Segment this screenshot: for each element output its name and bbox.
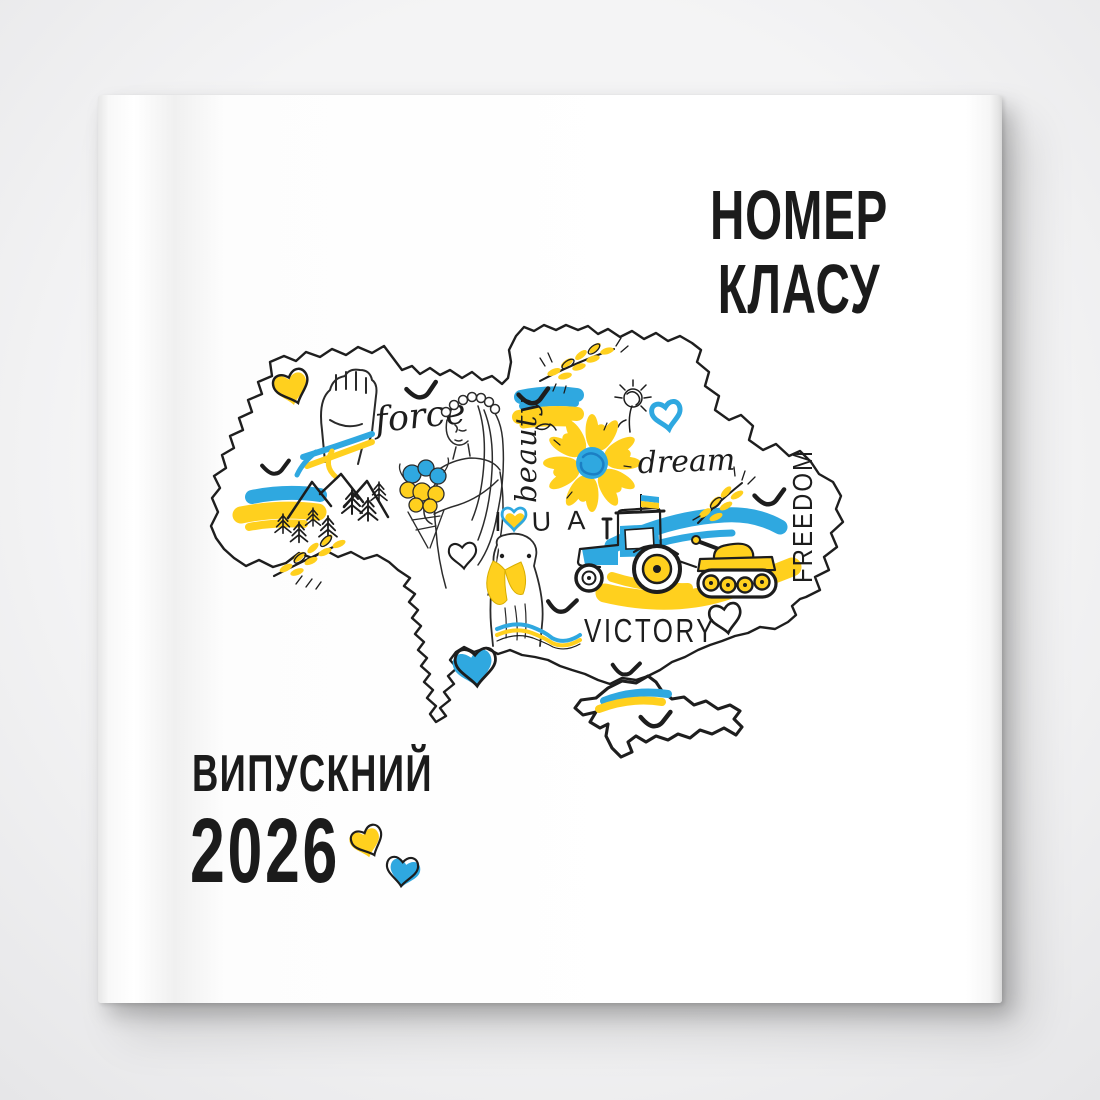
graduation-year: 2026 [190, 805, 340, 897]
freedom-label: FREEDOM [789, 449, 819, 583]
crimea-outline [575, 676, 742, 757]
dream-label: dream [637, 443, 736, 481]
ukraine-doodle-art: force [0, 0, 1100, 1100]
beauty-label: beauty [509, 397, 543, 503]
photo-album-mockup: force [0, 0, 1100, 1100]
class-number-title-line1: НОМЕР [690, 180, 908, 250]
beauty-script: beauty [509, 397, 543, 503]
victory-word: VICTORY [584, 613, 716, 650]
victory-label: VICTORY [584, 613, 716, 650]
class-number-title-line2: КЛАСУ [690, 254, 908, 324]
freedom-vertical: FREEDOM [789, 449, 819, 583]
graduation-label: ВИПУСКНИЙ [192, 748, 433, 800]
ua-label: U A [531, 505, 591, 537]
dream-script: dream [637, 443, 736, 481]
i-label: I [494, 506, 502, 537]
